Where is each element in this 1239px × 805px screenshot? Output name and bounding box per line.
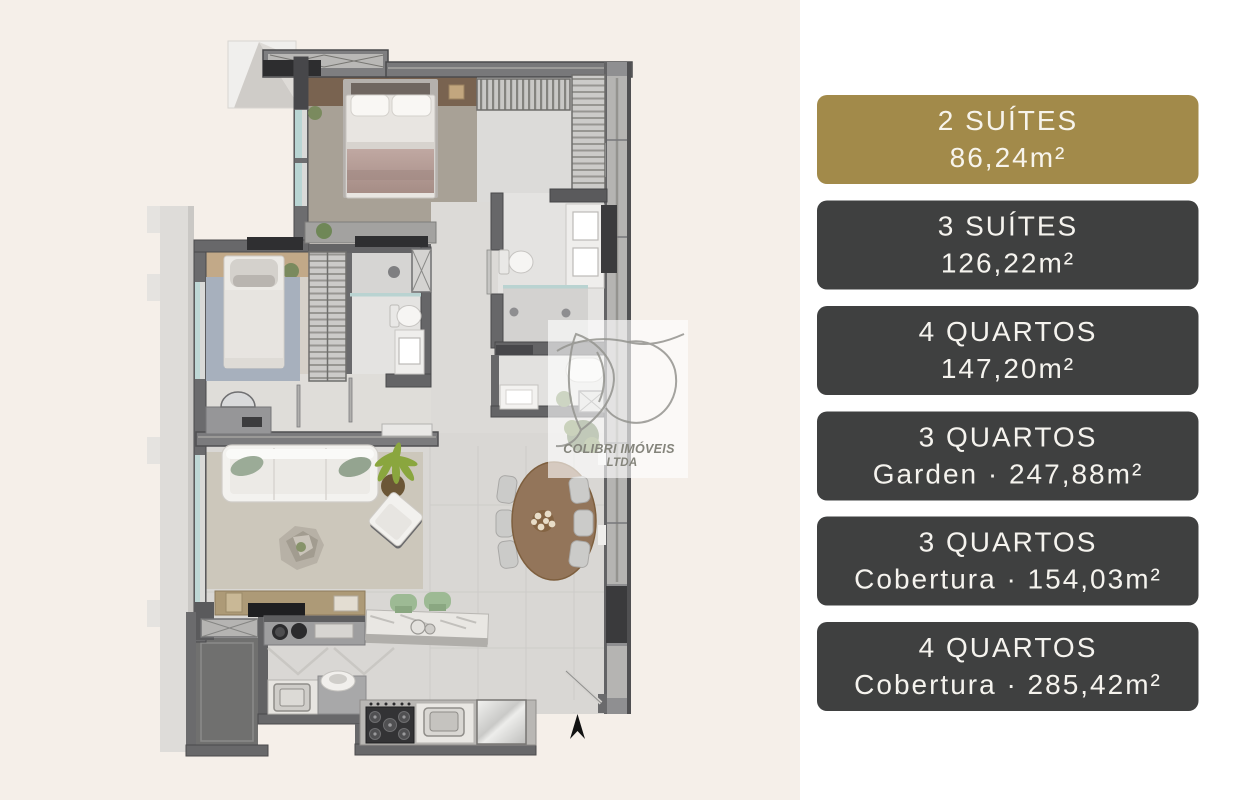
svg-text:4 QUARTOS: 4 QUARTOS	[919, 632, 1098, 663]
svg-text:3 SUÍTES: 3 SUÍTES	[938, 211, 1078, 242]
svg-text:4 QUARTOS: 4 QUARTOS	[919, 316, 1098, 347]
svg-text:147,20m²: 147,20m²	[941, 353, 1075, 384]
svg-text:Cobertura · 285,42m²: Cobertura · 285,42m²	[854, 669, 1162, 700]
svg-text:2 SUÍTES: 2 SUÍTES	[938, 105, 1078, 136]
svg-text:3 QUARTOS: 3 QUARTOS	[919, 527, 1098, 558]
svg-text:126,22m²: 126,22m²	[941, 248, 1075, 279]
svg-text:3 QUARTOS: 3 QUARTOS	[919, 422, 1098, 453]
svg-text:86,24m²: 86,24m²	[950, 142, 1067, 173]
svg-text:Cobertura · 154,03m²: Cobertura · 154,03m²	[854, 564, 1162, 595]
svg-text:Garden · 247,88m²: Garden · 247,88m²	[873, 459, 1144, 490]
svg-text:LTDA: LTDA	[606, 457, 637, 469]
svg-text:COLIBRI IMÓVEIS: COLIBRI IMÓVEIS	[563, 441, 675, 456]
